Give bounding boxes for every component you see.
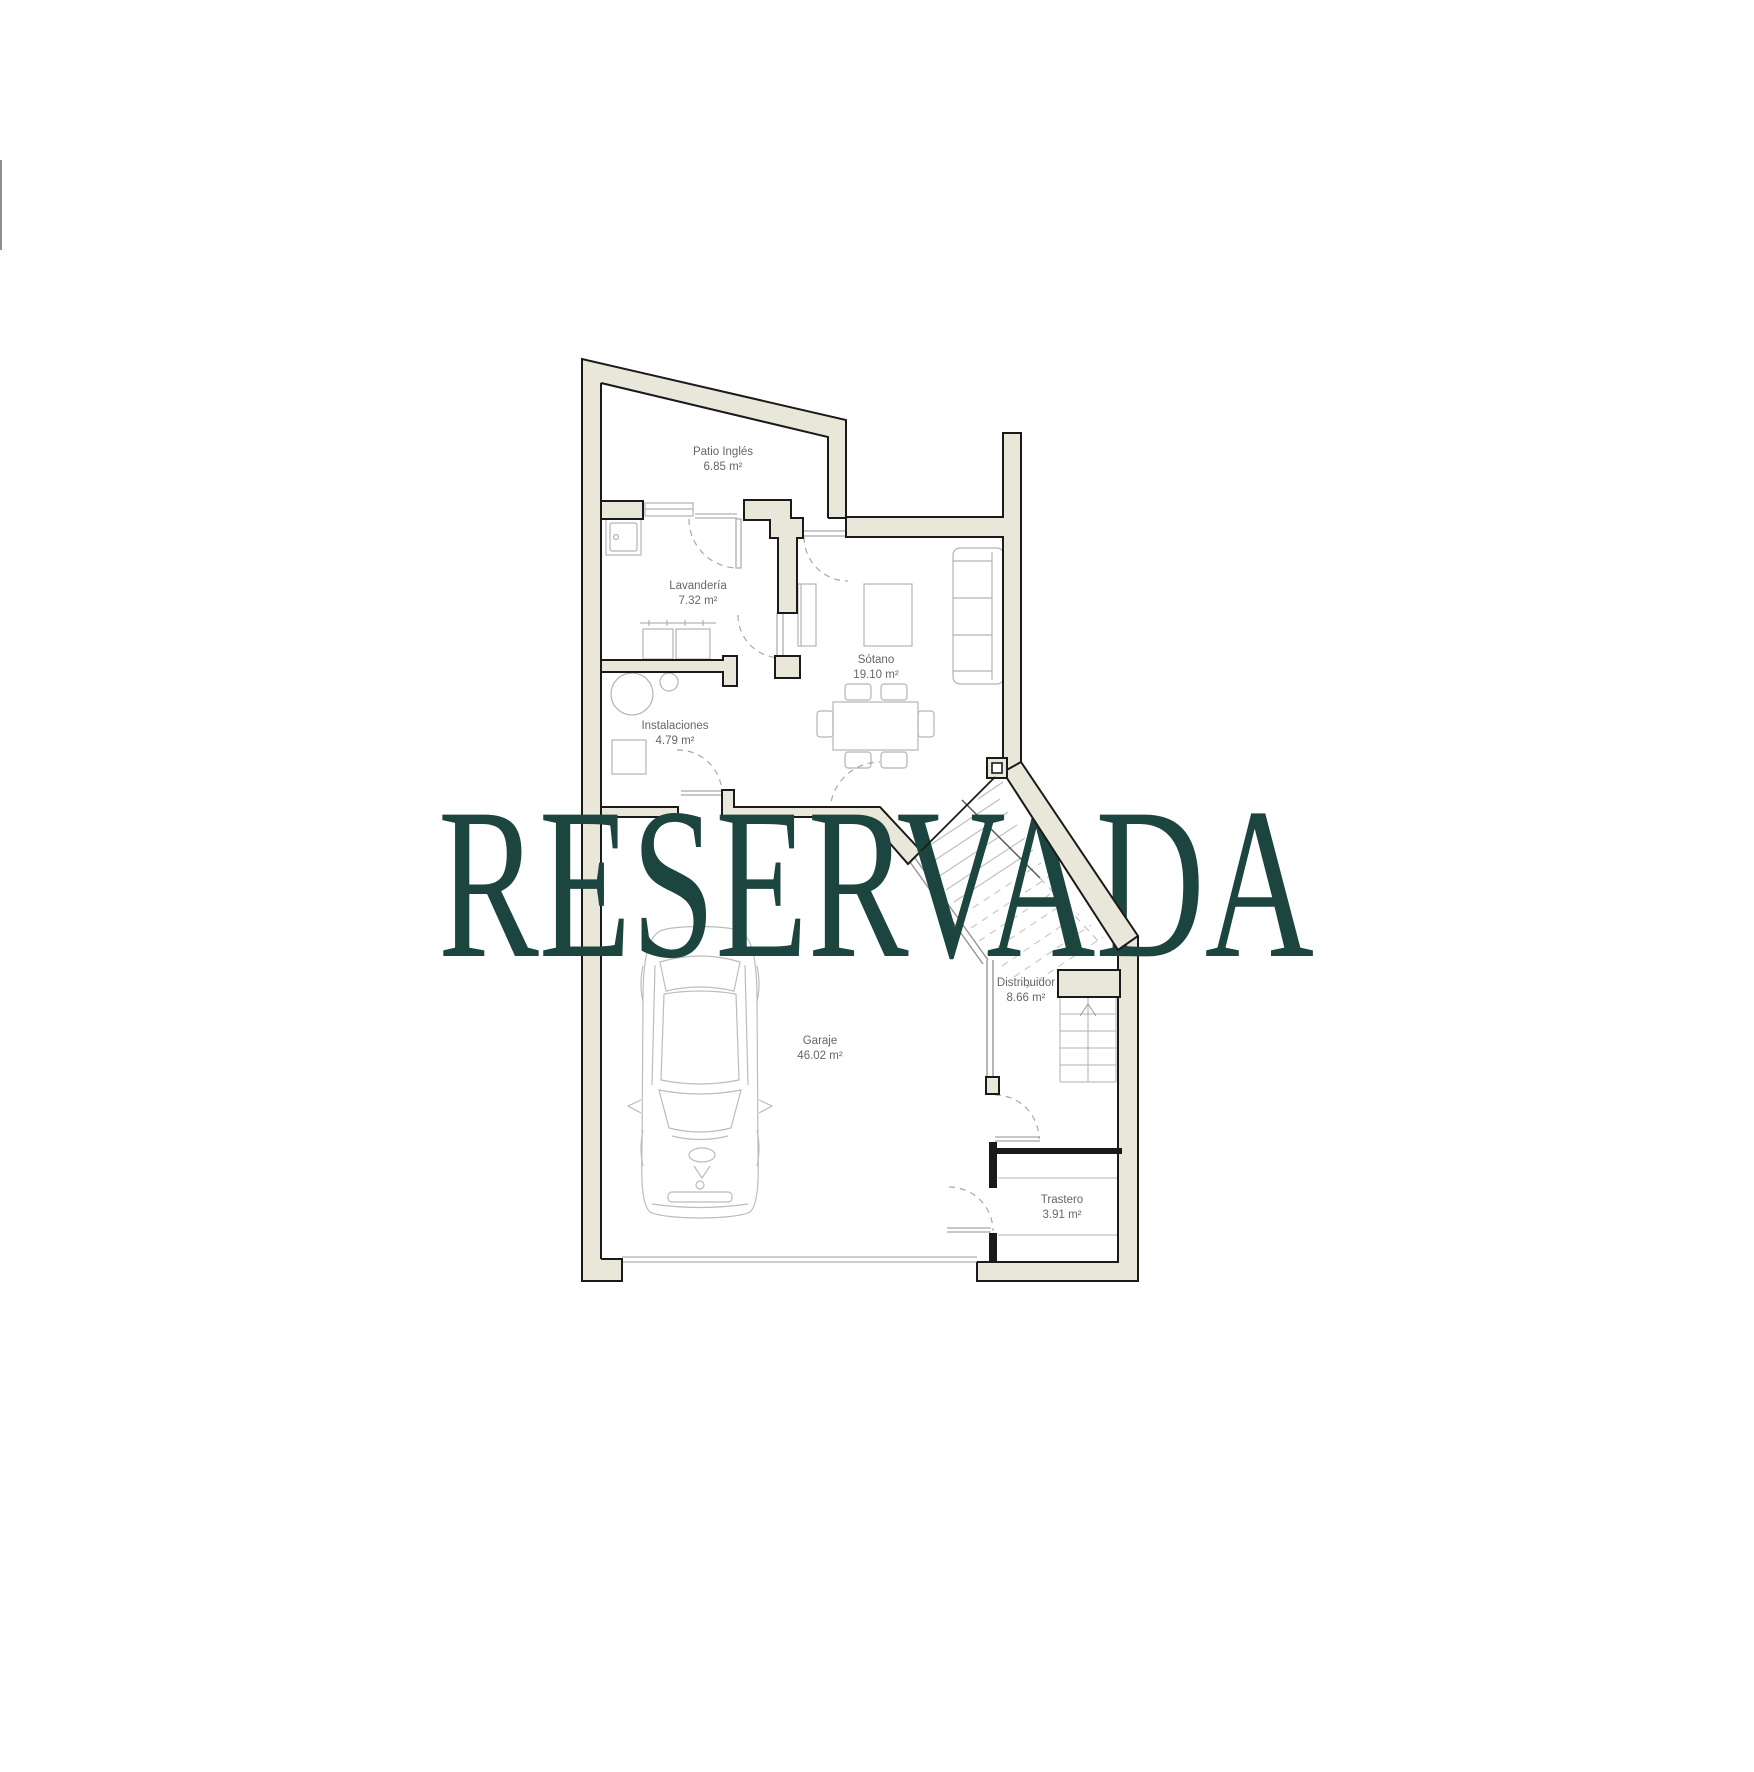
sofa-icon: [953, 548, 1004, 684]
svg-text:19.10 m²: 19.10 m²: [853, 669, 899, 681]
shelf-icon: [998, 1178, 1118, 1235]
coffee-table-icon: [864, 584, 912, 646]
room-label-patio-ingles: Patio Inglés 6.85 m²: [693, 446, 753, 473]
room-label-instalaciones: Instalaciones 4.79 m²: [641, 720, 708, 747]
door-swing-icon: [995, 1095, 1040, 1141]
svg-text:Lavandería: Lavandería: [669, 580, 727, 592]
wall-lav-inst-divider: [601, 656, 737, 686]
wall-bottom: [977, 1262, 1138, 1281]
svg-text:Instalaciones: Instalaciones: [641, 720, 708, 732]
chair-icon: [845, 684, 871, 700]
wall-t-piece: [744, 500, 803, 613]
wall-trastero-left-upper: [989, 1142, 997, 1188]
wall-lavanderia-top: [601, 501, 643, 519]
wall-top-slanted: [582, 359, 846, 437]
wall-trastero-left-lower: [989, 1233, 997, 1262]
wall-left-foot: [582, 1259, 622, 1281]
door-swing-icon: [738, 613, 783, 658]
watermark-text: RESERVADA: [438, 764, 1314, 1003]
room-label-garaje: Garaje 46.02 m²: [797, 1035, 843, 1062]
wall-stair-block: [1058, 970, 1120, 997]
chair-icon: [918, 711, 934, 737]
garage-door-icon: [622, 1257, 977, 1262]
door-swing-icon: [804, 531, 848, 581]
svg-text:7.32 m²: 7.32 m²: [679, 595, 718, 607]
left-edge-artifact: [0, 160, 2, 250]
wall-patio-right: [828, 420, 846, 518]
svg-text:Patio Inglés: Patio Inglés: [693, 446, 753, 458]
svg-text:46.02 m²: 46.02 m²: [797, 1050, 843, 1062]
cabinet-icon: [798, 584, 816, 646]
wall-glass-post: [986, 1077, 999, 1094]
floorplan-page: Patio Inglés 6.85 m² Lavandería 7.32 m² …: [0, 0, 1754, 1772]
column-icon: [987, 758, 1007, 778]
svg-text:Sótano: Sótano: [858, 654, 894, 666]
wall-post: [775, 656, 800, 678]
wall-sotano-east: [1003, 433, 1021, 772]
wall-trastero-top: [997, 1148, 1122, 1154]
wall-lightwell-bottom: [846, 517, 1003, 537]
chair-icon: [817, 711, 833, 737]
straight-stairs-icon: [1060, 997, 1116, 1082]
floor-plan-svg: Patio Inglés 6.85 m² Lavandería 7.32 m² …: [0, 0, 1754, 1772]
door-swing-icon: [689, 519, 741, 568]
room-label-sotano: Sótano 19.10 m²: [853, 654, 899, 681]
svg-text:3.91 m²: 3.91 m²: [1043, 1209, 1082, 1221]
window-icon: [645, 503, 737, 518]
room-label-trastero: Trastero 3.91 m²: [1041, 1194, 1083, 1221]
dryer-icon: [676, 629, 710, 659]
washer-icon: [640, 620, 716, 659]
laundry-sink-icon: [606, 519, 641, 555]
svg-text:4.79 m²: 4.79 m²: [656, 735, 695, 747]
room-label-lavanderia: Lavandería 7.32 m²: [669, 580, 727, 607]
svg-text:6.85 m²: 6.85 m²: [704, 461, 743, 473]
dining-table-icon: [817, 684, 934, 768]
chair-icon: [881, 684, 907, 700]
boiler-tank-icon: [611, 673, 678, 715]
door-swing-icon: [947, 1187, 993, 1232]
svg-text:Trastero: Trastero: [1041, 1194, 1083, 1206]
svg-text:Garaje: Garaje: [803, 1035, 838, 1047]
